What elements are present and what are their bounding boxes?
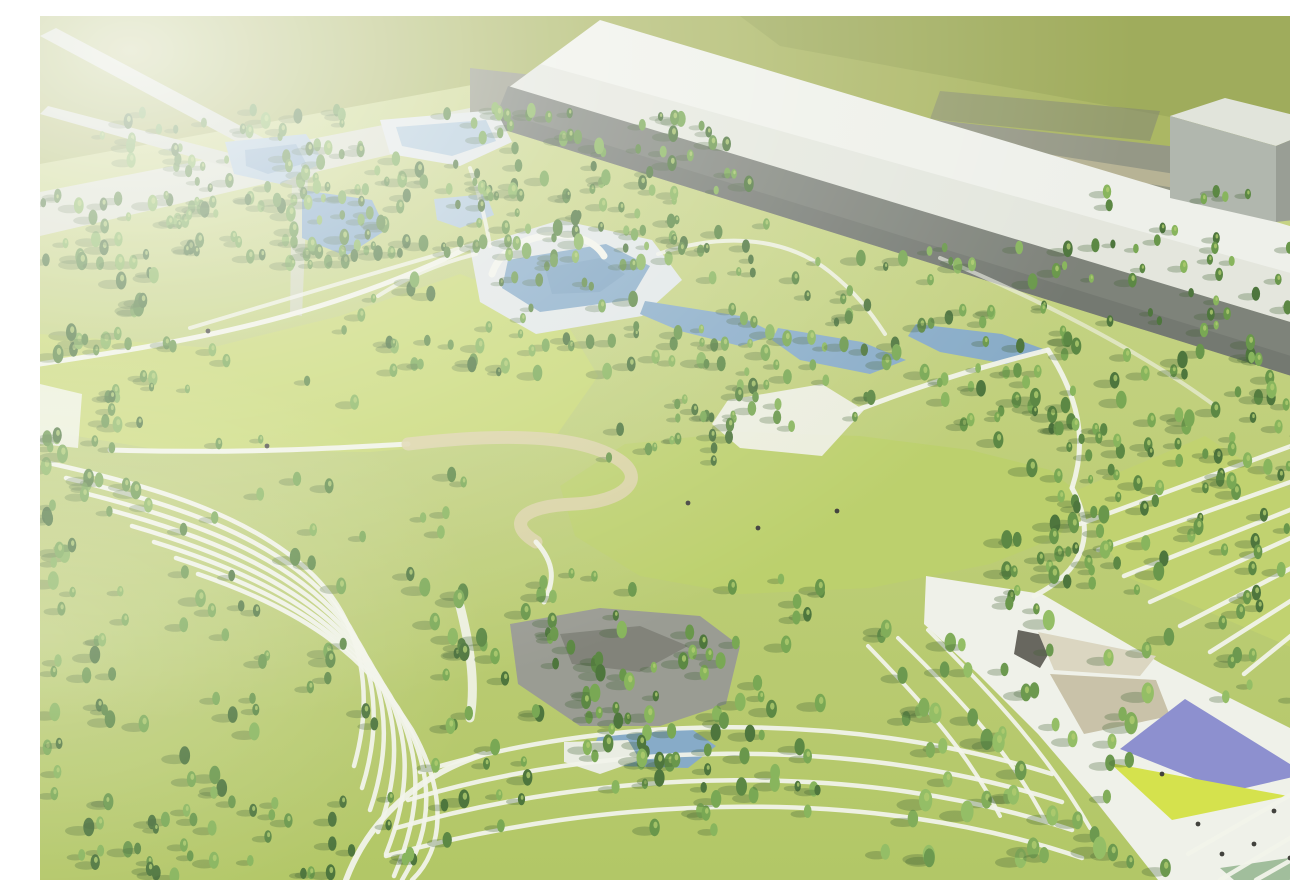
atmospheric-wash — [40, 16, 1290, 880]
park-aerial-rendering — [40, 16, 1290, 880]
scene-canvas — [40, 16, 1290, 880]
